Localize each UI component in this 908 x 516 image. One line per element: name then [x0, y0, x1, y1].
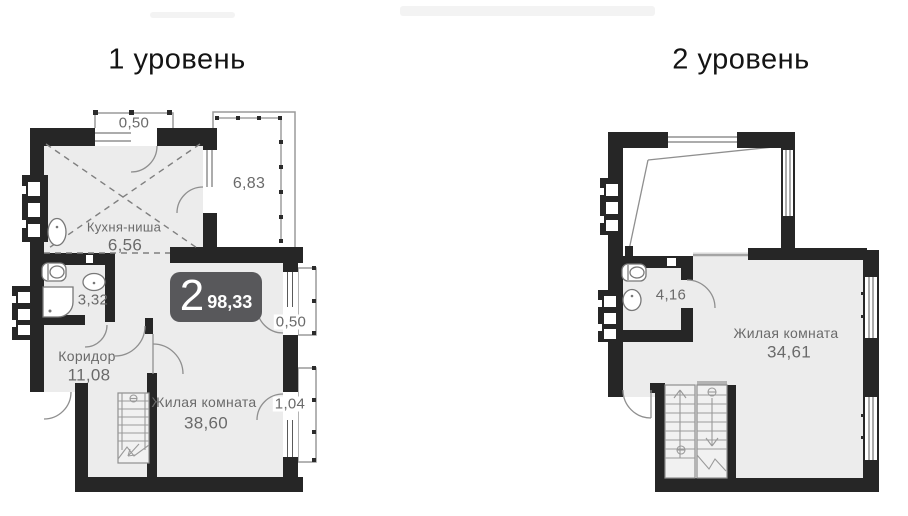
living-room-area: 38,60 [184, 415, 228, 432]
stairs-level1 [118, 393, 149, 463]
floorplan-drawing [0, 0, 908, 516]
bathroom-area: 3,32 [76, 293, 110, 308]
level2-title: 2 уровень [672, 44, 809, 77]
living-room-label-level2: Жилая комната [733, 326, 838, 340]
kitchen-area: 6,56 [108, 237, 142, 254]
balcony-low-area: 1,04 [273, 397, 307, 412]
corridor-label: Коридор [58, 349, 115, 363]
kitchen-label: Кухня-ниша [87, 221, 161, 234]
sink-icon [83, 274, 105, 291]
floorplan-page: 1 уровень 2 уровень 0,50 Кухня-ниша 6,56… [0, 0, 908, 516]
bathroom-area-level2: 4,16 [654, 288, 688, 303]
corridor-area: 11,08 [68, 367, 111, 384]
apartment-badge: 2 98,33 [170, 272, 262, 322]
living-room-area-level2: 34,61 [767, 344, 811, 361]
badge-room-count: 2 [180, 274, 204, 318]
living-room-label: Жилая комната [151, 395, 256, 409]
void-opening-lines [629, 146, 783, 250]
toilet-icon [622, 264, 646, 281]
shower-icon [43, 287, 73, 317]
level1-title: 1 уровень [108, 44, 245, 77]
toilet-icon [42, 263, 66, 281]
balcony-top-area: 0,50 [117, 116, 151, 131]
balcony-mid-area: 0,50 [274, 315, 308, 330]
floor-fills [44, 142, 863, 478]
sink-icon [623, 290, 641, 311]
balcony-big-area: 6,83 [233, 176, 265, 192]
badge-total-area: 98,33 [207, 292, 252, 313]
kitchen-sink-icon [48, 219, 66, 246]
